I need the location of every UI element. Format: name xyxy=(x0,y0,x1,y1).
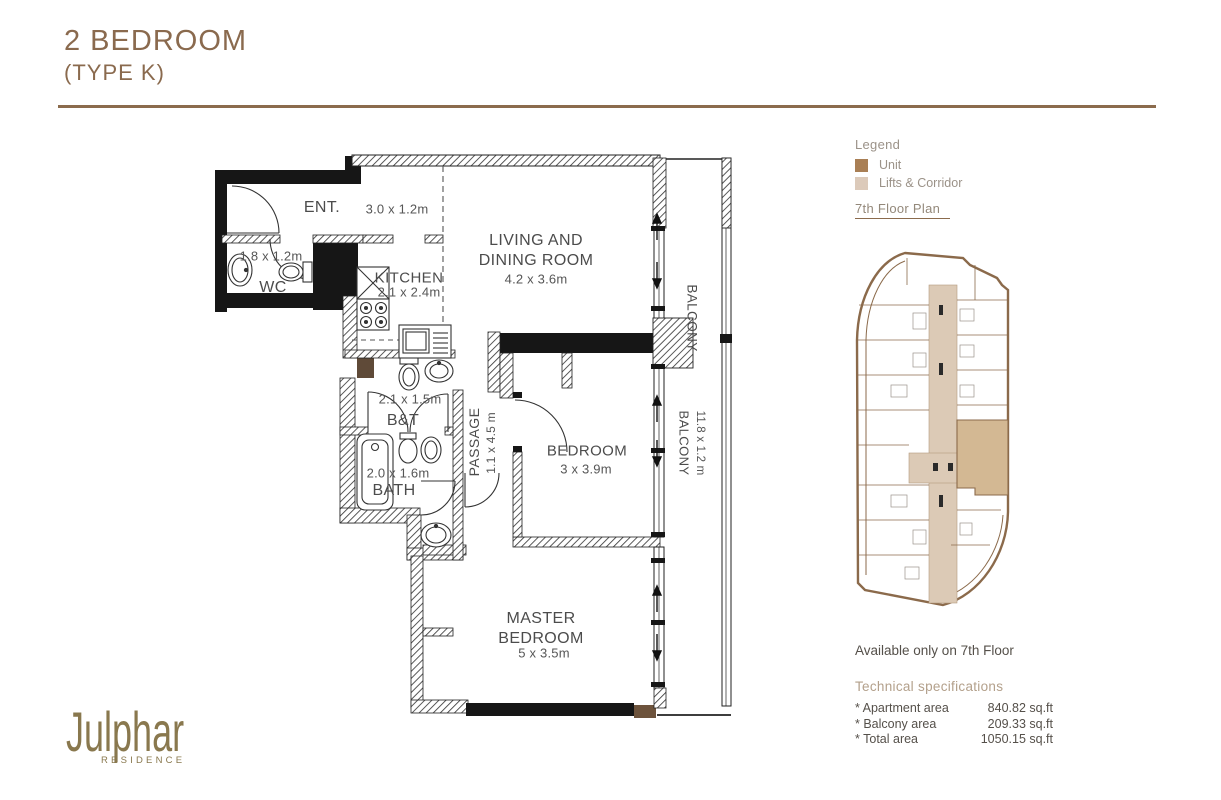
spec-label: * Total area xyxy=(855,732,918,748)
availability-note: Available only on 7th Floor xyxy=(855,643,1014,658)
lifts-corridor-color-swatch xyxy=(855,177,868,190)
room-dims-bedroom: 3 x 3.9m xyxy=(560,462,611,477)
room-dims-kitchen: 2.1 x 2.4m xyxy=(378,285,441,300)
room-label-balcony-upper: BALCONY xyxy=(685,284,700,351)
legend-item-unit-label: Unit xyxy=(879,158,901,172)
logo-subtitle: RESIDENCE xyxy=(101,755,185,766)
mini-floor-plan xyxy=(857,253,1008,605)
legend-item-unit: Unit xyxy=(855,158,901,172)
specs-heading: Technical specifications xyxy=(855,679,1003,694)
room-label-balcony-lower: BALCONY xyxy=(677,411,692,476)
room-label-wc: WC xyxy=(259,279,286,297)
room-dims-bt: 2.1 x 1.5m xyxy=(379,392,442,407)
room-dims-living: 4.2 x 3.6m xyxy=(505,272,568,287)
room-dims-bath: 2.0 x 1.6m xyxy=(367,466,430,481)
floor-plan-link[interactable]: 7th Floor Plan xyxy=(855,201,950,219)
room-label-bedroom: BEDROOM xyxy=(547,443,627,460)
room-dims-wc: 1.8 x 1.2m xyxy=(240,249,303,264)
room-label-passage: PASSAGE xyxy=(466,408,482,477)
room-label-master-line1: MASTER xyxy=(506,610,575,628)
brand-logo: Julphar xyxy=(66,700,184,742)
spec-value: 209.33 sq.ft xyxy=(988,717,1053,733)
spec-row-apartment: * Apartment area 840.82 sq.ft xyxy=(855,701,1053,717)
room-dims-balcony-lower: 11.8 x 1.2 m xyxy=(694,411,706,476)
spec-label: * Balcony area xyxy=(855,717,936,733)
spec-label: * Apartment area xyxy=(855,701,949,717)
room-label-bt: B&T xyxy=(387,412,419,430)
room-dims-passage: 1.1 x 4.5 m xyxy=(484,412,498,474)
spec-row-balcony: * Balcony area 209.33 sq.ft xyxy=(855,717,1053,733)
spec-value: 1050.15 sq.ft xyxy=(981,732,1053,748)
legend-heading: Legend xyxy=(855,137,900,152)
room-label-living-line1: LIVING AND xyxy=(489,232,583,250)
specs-table: * Apartment area 840.82 sq.ft * Balcony … xyxy=(855,701,1053,748)
room-dims-ent: 3.0 x 1.2m xyxy=(366,202,429,217)
legend-item-lifts-label: Lifts & Corridor xyxy=(879,176,962,190)
room-label-ent: ENT. xyxy=(304,199,340,217)
highlighted-unit xyxy=(957,420,1008,495)
floor-plan-page: { "page": { "title_line1": "2 BEDROOM", … xyxy=(0,0,1221,800)
room-label-bath: BATH xyxy=(372,482,415,500)
unit-color-swatch xyxy=(855,159,868,172)
legend-item-lifts: Lifts & Corridor xyxy=(855,176,962,190)
spec-value: 840.82 sq.ft xyxy=(988,701,1053,717)
room-dims-master: 5 x 3.5m xyxy=(518,646,569,661)
spec-row-total: * Total area 1050.15 sq.ft xyxy=(855,732,1053,748)
room-label-living-line2: DINING ROOM xyxy=(479,252,594,270)
floor-plan-svg xyxy=(0,0,1221,800)
